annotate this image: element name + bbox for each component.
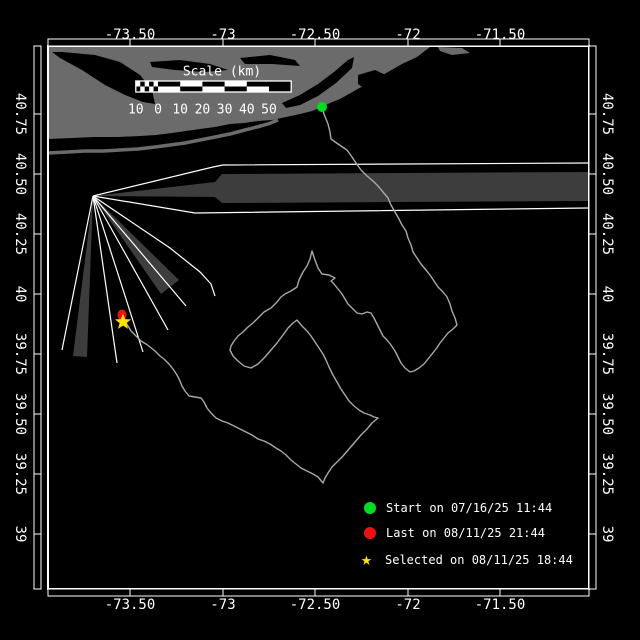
map-canvas	[0, 0, 640, 640]
border-band-segment	[589, 534, 596, 589]
border-band-segment	[34, 534, 41, 589]
border-band-segment	[589, 414, 596, 474]
lat-tick-label-left: 40	[12, 286, 28, 303]
lon-tick-label-bottom: -72	[395, 597, 420, 613]
border-band-segment	[589, 114, 596, 174]
border-band-segment	[48, 589, 130, 596]
start-marker[interactable]	[317, 102, 327, 112]
lon-tick-label-top: -71.50	[475, 27, 526, 43]
radar-beam-line	[93, 196, 143, 352]
border-band-segment	[589, 46, 596, 114]
border-band-segment	[34, 234, 41, 294]
lat-tick-label-left: 39.75	[12, 333, 28, 375]
lat-tick-label-right: 39.50	[599, 393, 615, 435]
scale-bar-number: 50	[261, 103, 277, 118]
lat-tick-label-left: 40.50	[12, 153, 28, 195]
border-band-segment	[34, 414, 41, 474]
border-band-segment	[223, 589, 315, 596]
scale-bar-segment	[180, 81, 202, 87]
lat-tick-label-right: 40.25	[599, 213, 615, 255]
lat-tick-label-left: 40.25	[12, 213, 28, 255]
lon-tick-label-bottom: -71.50	[475, 597, 526, 613]
lat-tick-label-left: 39.50	[12, 393, 28, 435]
drifter-track-map: -73.50-73.50-73-73-72.50-72.50-72-72-71.…	[0, 0, 640, 640]
scale-bar-segment	[225, 81, 247, 87]
lon-tick-label-top: -72	[395, 27, 420, 43]
lat-tick-label-right: 40.75	[599, 93, 615, 135]
scale-bar-number: 10	[128, 103, 144, 118]
lon-tick-label-top: -73	[210, 27, 235, 43]
lat-tick-label-right: 39.75	[599, 333, 615, 375]
lat-tick-label-right: 39	[599, 526, 615, 543]
border-band-segment	[589, 354, 596, 414]
scale-bar-title: Scale (km)	[183, 65, 261, 80]
scale-bar-number: 10	[172, 103, 188, 118]
border-band-segment	[408, 589, 500, 596]
radar-beam-wedge	[73, 196, 93, 357]
scale-bar-fine-cell	[154, 81, 158, 87]
border-band-segment	[500, 589, 589, 596]
lon-tick-label-bottom: -72.50	[290, 597, 341, 613]
lat-tick-label-right: 39.25	[599, 453, 615, 495]
scale-bar-fine-cell	[140, 87, 144, 93]
scale-bar-fine-cell	[136, 81, 140, 87]
border-band-segment	[34, 46, 41, 114]
scale-bar-number: 0	[154, 103, 162, 118]
scale-bar-segment	[202, 87, 224, 93]
scale-bar-segment	[158, 87, 180, 93]
lat-tick-label-right: 40.50	[599, 153, 615, 195]
border-band-segment	[589, 174, 596, 234]
scale-bar-segment	[247, 87, 269, 93]
border-band-segment	[589, 294, 596, 354]
radar-beam-wedge	[93, 172, 588, 203]
scale-bar-number: 20	[195, 103, 211, 118]
border-band-segment	[589, 474, 596, 534]
border-band-segment	[34, 474, 41, 534]
lon-tick-label-top: -73.50	[105, 27, 156, 43]
scale-bar-number: 40	[239, 103, 255, 118]
lon-tick-label-bottom: -73	[210, 597, 235, 613]
lon-tick-label-top: -72.50	[290, 27, 341, 43]
border-band-segment	[34, 114, 41, 174]
lon-tick-label-bottom: -73.50	[105, 597, 156, 613]
island-spit	[438, 47, 470, 55]
border-band-segment	[589, 234, 596, 294]
lat-tick-label-right: 40	[599, 286, 615, 303]
border-band-segment	[34, 294, 41, 354]
border-band-segment	[34, 174, 41, 234]
lat-tick-label-left: 40.75	[12, 93, 28, 135]
scale-bar-fine-cell	[149, 87, 153, 93]
border-band-segment	[34, 354, 41, 414]
lat-tick-label-left: 39.25	[12, 453, 28, 495]
border-band-segment	[315, 589, 408, 596]
lat-tick-label-left: 39	[12, 526, 28, 543]
border-band-segment	[130, 589, 223, 596]
scale-bar-fine-cell	[145, 81, 149, 87]
scale-bar-number: 30	[217, 103, 233, 118]
